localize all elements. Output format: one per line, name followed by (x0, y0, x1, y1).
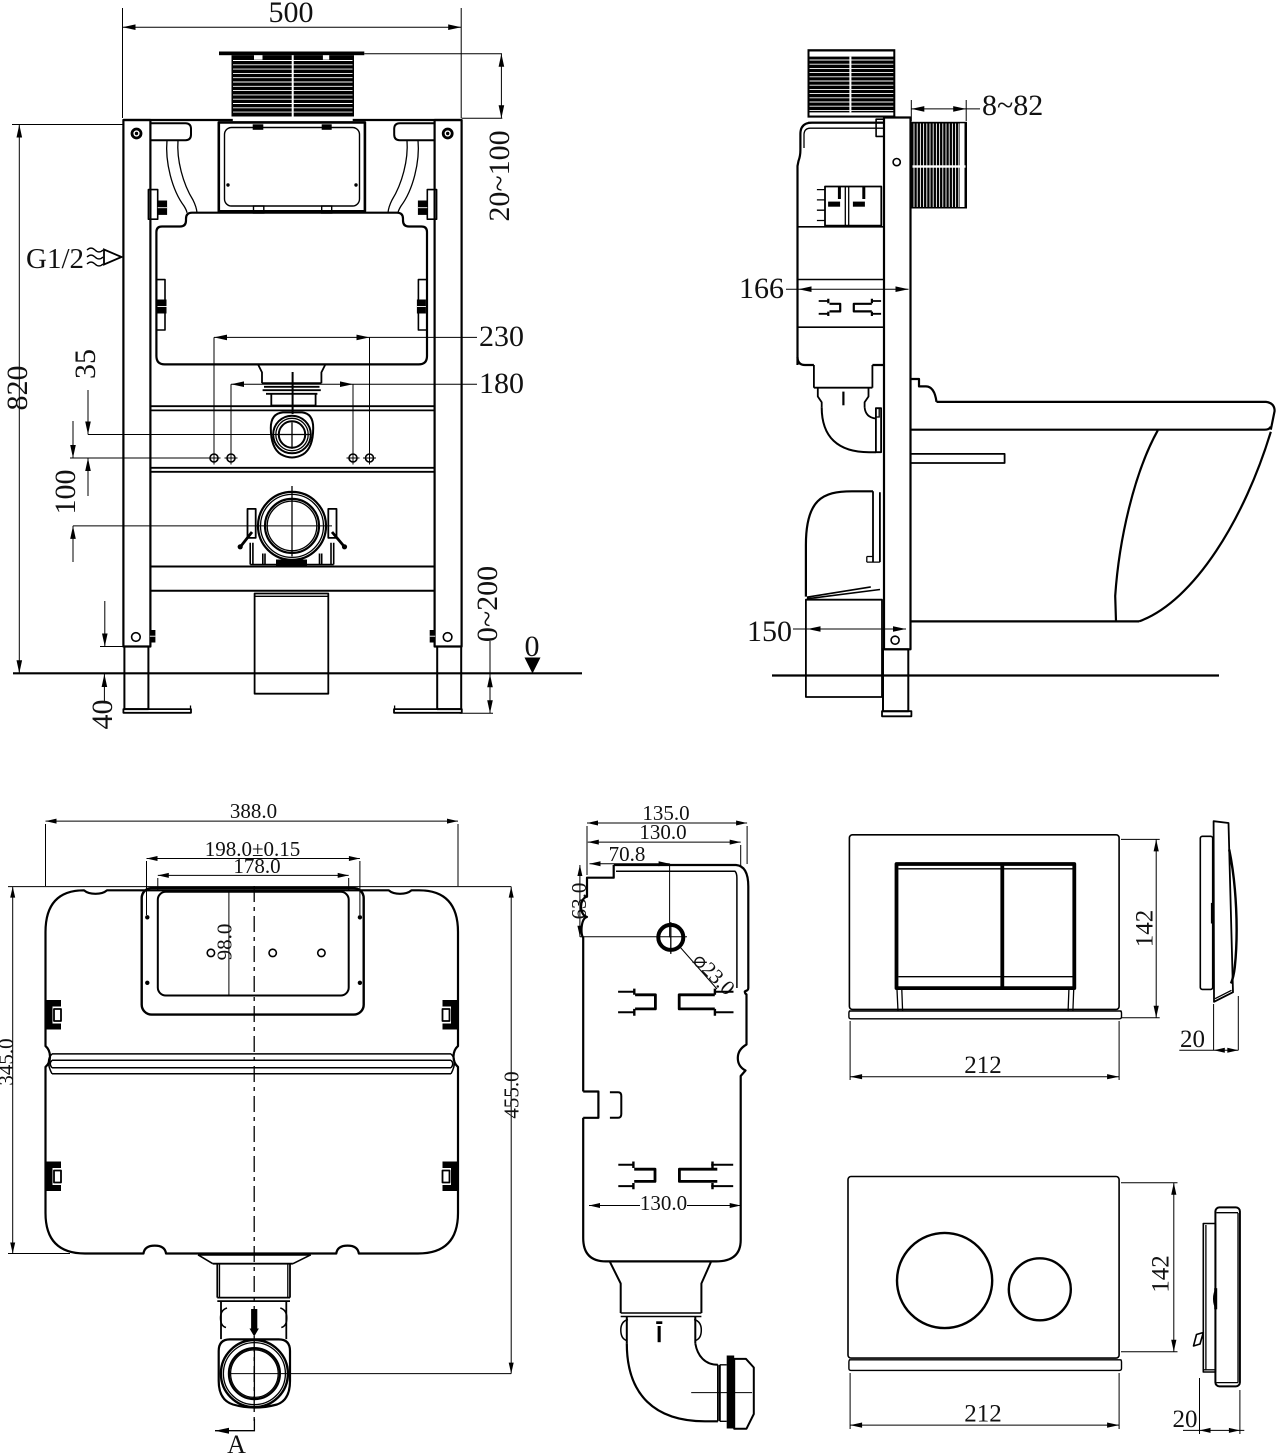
svg-text:20~100: 20~100 (483, 130, 516, 221)
svg-text:166: 166 (739, 272, 784, 305)
svg-text:500: 500 (269, 0, 314, 29)
svg-text:230: 230 (479, 320, 524, 353)
svg-text:212: 212 (964, 1401, 1002, 1428)
svg-text:G1/2: G1/2 (26, 243, 84, 275)
svg-text:100: 100 (49, 470, 82, 515)
svg-text:345.0: 345.0 (0, 1038, 18, 1085)
svg-text:388.0: 388.0 (230, 799, 277, 823)
svg-text:40: 40 (86, 700, 119, 730)
svg-text:20: 20 (1173, 1406, 1198, 1433)
svg-text:150: 150 (747, 615, 792, 648)
svg-text:A: A (227, 1430, 246, 1456)
svg-text:98.0: 98.0 (213, 924, 237, 961)
svg-text:180: 180 (479, 367, 524, 400)
svg-text:130.0: 130.0 (640, 1191, 687, 1215)
svg-text:8~82: 8~82 (982, 89, 1043, 122)
svg-text:35: 35 (69, 349, 102, 379)
svg-text:130.0: 130.0 (639, 820, 686, 844)
svg-text:820: 820 (1, 366, 34, 411)
svg-text:455.0: 455.0 (500, 1071, 524, 1118)
svg-text:212: 212 (964, 1052, 1002, 1079)
svg-text:178.0: 178.0 (233, 854, 280, 878)
svg-text:0~200: 0~200 (471, 566, 504, 642)
svg-text:20: 20 (1180, 1026, 1205, 1053)
svg-text:142: 142 (1132, 910, 1159, 948)
svg-text:70.8: 70.8 (609, 842, 646, 866)
svg-text:142: 142 (1148, 1255, 1175, 1293)
